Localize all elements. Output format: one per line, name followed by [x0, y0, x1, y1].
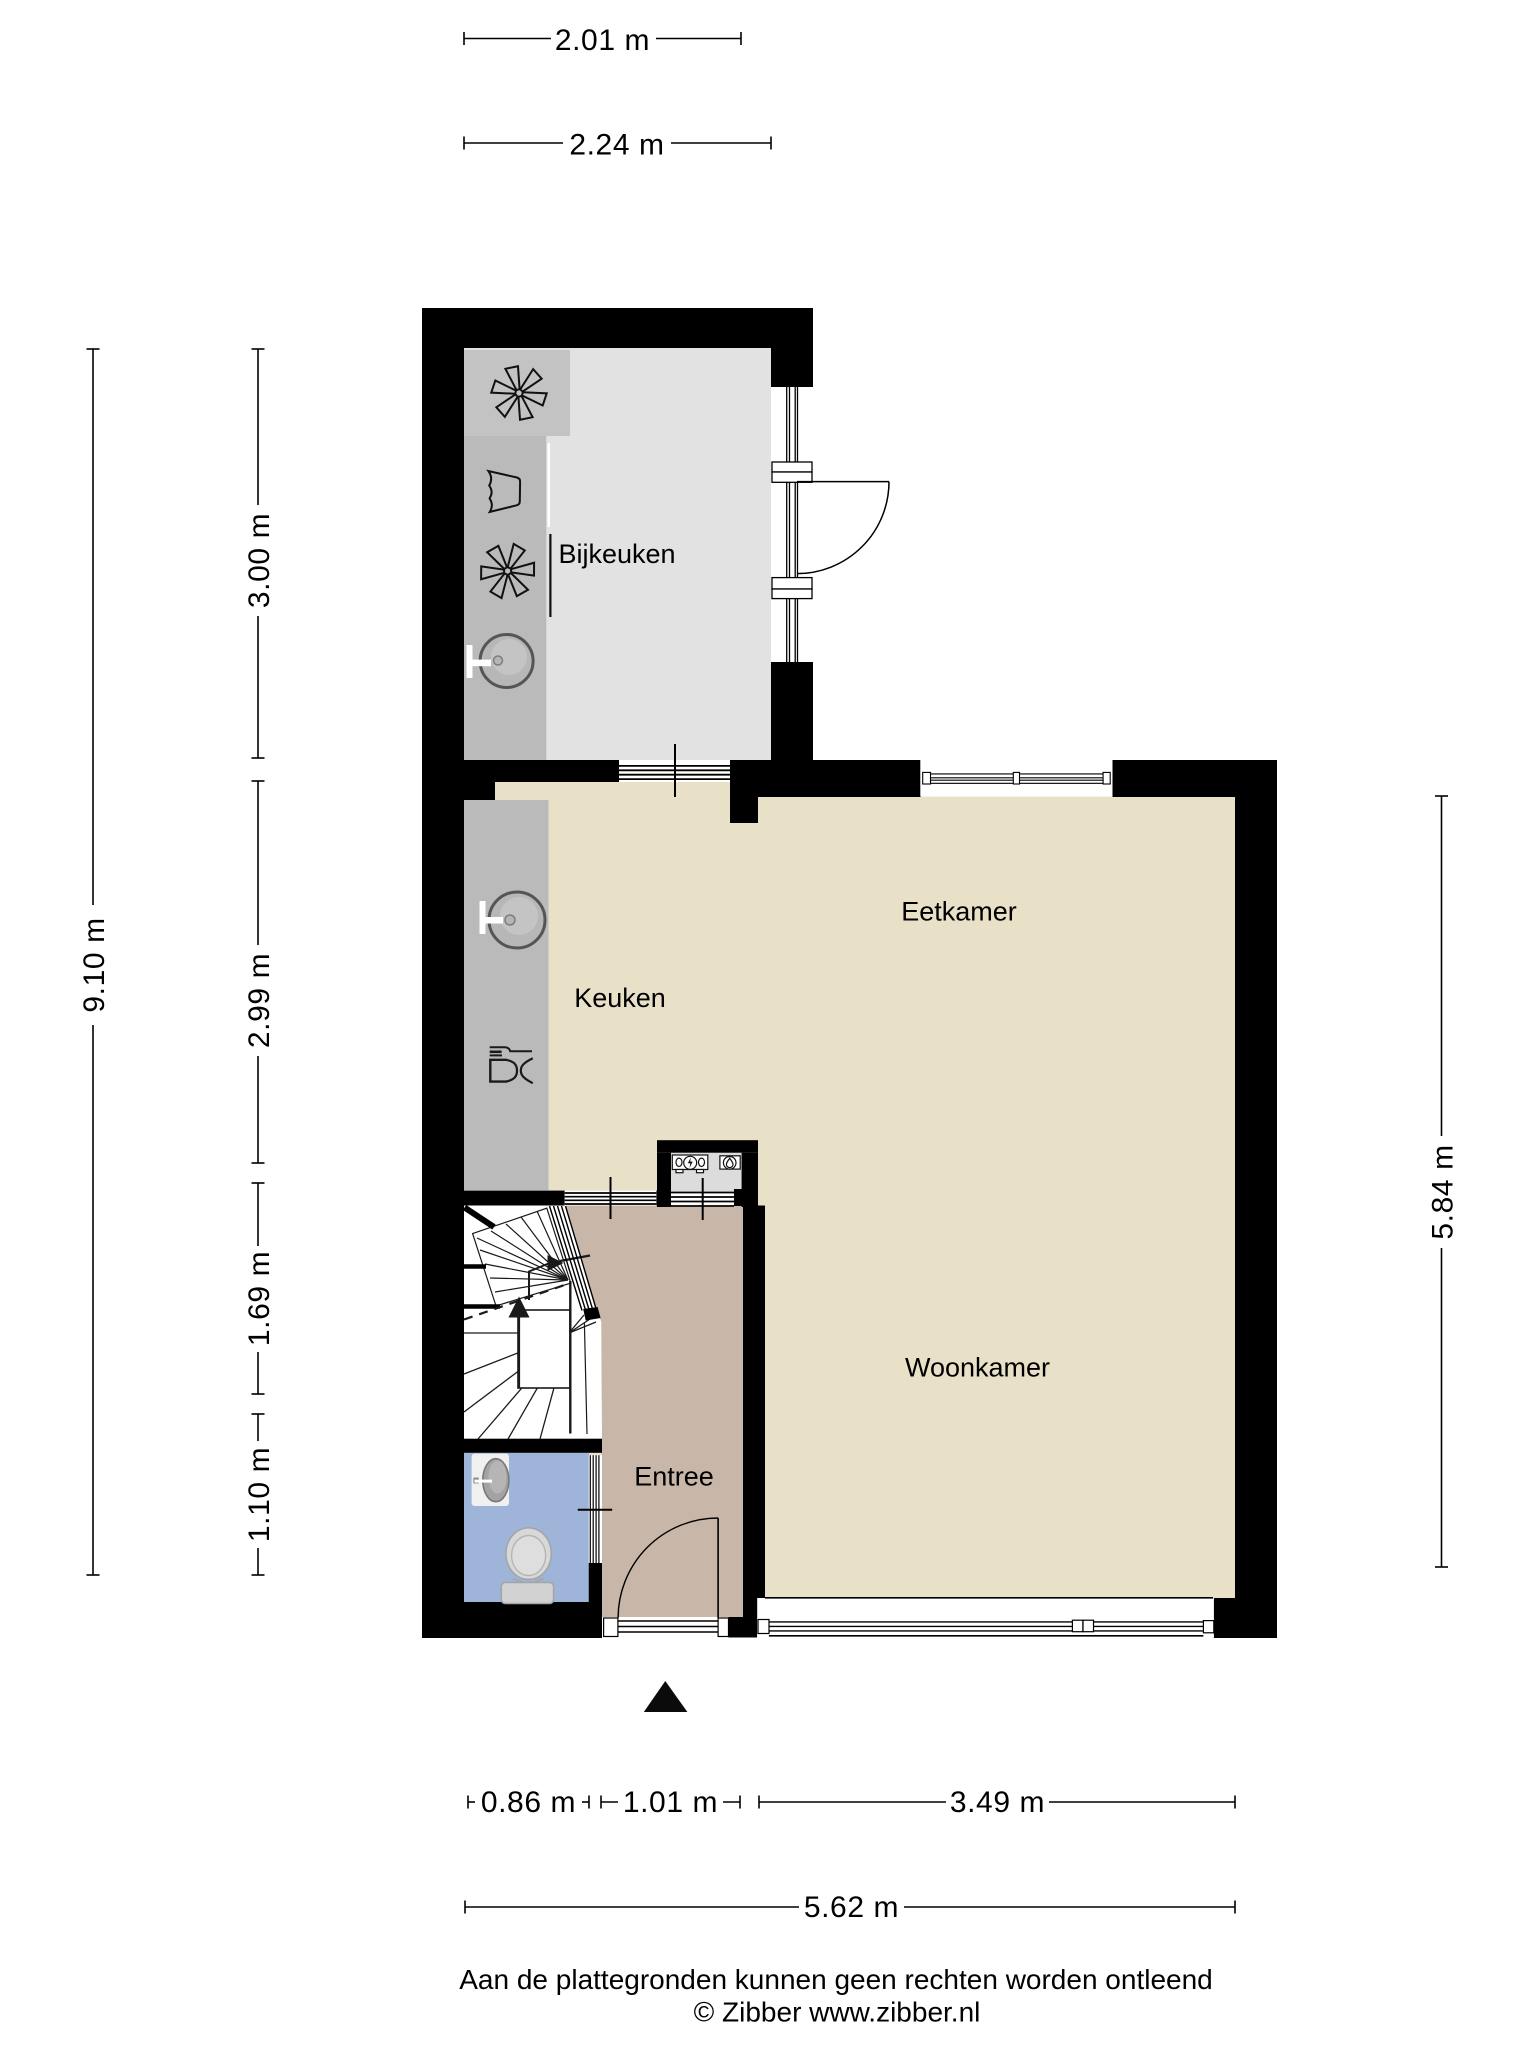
svg-text:Woonkamer: Woonkamer: [905, 1353, 1050, 1383]
svg-text:1.10 m: 1.10 m: [243, 1447, 276, 1542]
svg-text:1.69 m: 1.69 m: [243, 1251, 276, 1346]
svg-text:0.86 m: 0.86 m: [481, 1786, 576, 1819]
svg-text:Entree: Entree: [634, 1462, 714, 1492]
svg-text:2.01 m: 2.01 m: [555, 24, 650, 57]
svg-text:© Zibber www.zibber.nl: © Zibber www.zibber.nl: [694, 1997, 981, 2028]
svg-text:9.10 m: 9.10 m: [78, 917, 111, 1012]
svg-text:5.62 m: 5.62 m: [804, 1891, 899, 1924]
svg-text:Bijkeuken: Bijkeuken: [558, 539, 675, 569]
svg-text:2.99 m: 2.99 m: [243, 953, 276, 1048]
svg-text:5.84 m: 5.84 m: [1427, 1144, 1460, 1239]
svg-text:Aan de plattegronden kunnen ge: Aan de plattegronden kunnen geen rechten…: [459, 1964, 1212, 1995]
svg-text:2.24 m: 2.24 m: [569, 129, 664, 162]
svg-text:3.00 m: 3.00 m: [243, 513, 276, 608]
svg-text:Keuken: Keuken: [574, 983, 666, 1013]
svg-text:Eetkamer: Eetkamer: [901, 897, 1017, 927]
svg-text:1.01 m: 1.01 m: [623, 1786, 718, 1819]
svg-text:3.49 m: 3.49 m: [950, 1786, 1045, 1819]
